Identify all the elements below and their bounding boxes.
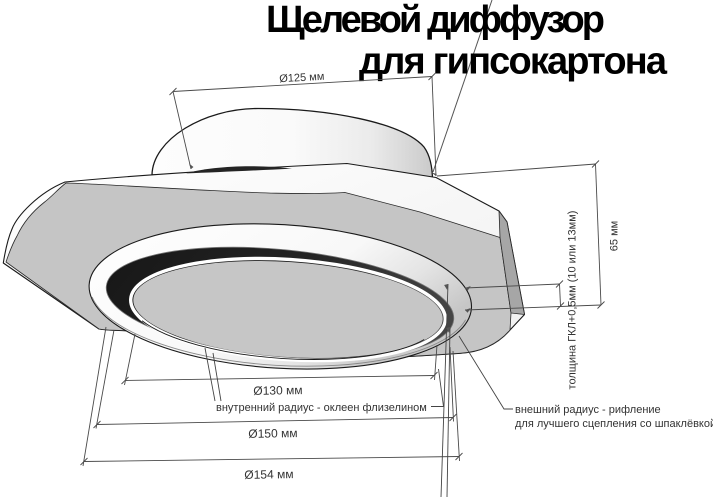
svg-text:Ø130 мм: Ø130 мм (253, 383, 302, 398)
svg-text:Щелевой диффузор: Щелевой диффузор (266, 0, 605, 41)
svg-text:внутренний радиус - оклеен фли: внутренний радиус - оклеен флизелином (216, 402, 427, 414)
svg-text:внешний радиус - рифление: внешний радиус - рифление (515, 404, 661, 416)
svg-text:толщина ГКЛ+0,5мм (10 или 13мм: толщина ГКЛ+0,5мм (10 или 13мм) (567, 211, 579, 390)
svg-text:65 мм: 65 мм (609, 221, 621, 251)
svg-text:Ø150 мм: Ø150 мм (248, 426, 297, 441)
svg-text:Ø154 мм: Ø154 мм (244, 467, 293, 482)
svg-text:для гипсокартона: для гипсокартона (359, 41, 668, 83)
svg-text:для лучшего сцепления со шпакл: для лучшего сцепления со шпаклёвкой (515, 418, 713, 430)
